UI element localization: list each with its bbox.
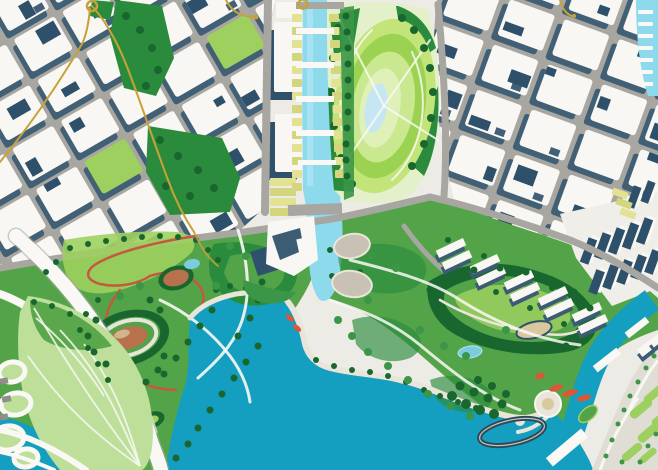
masterplan-map-canvas — [0, 0, 658, 470]
masterplan-aerial-render — [0, 0, 658, 470]
